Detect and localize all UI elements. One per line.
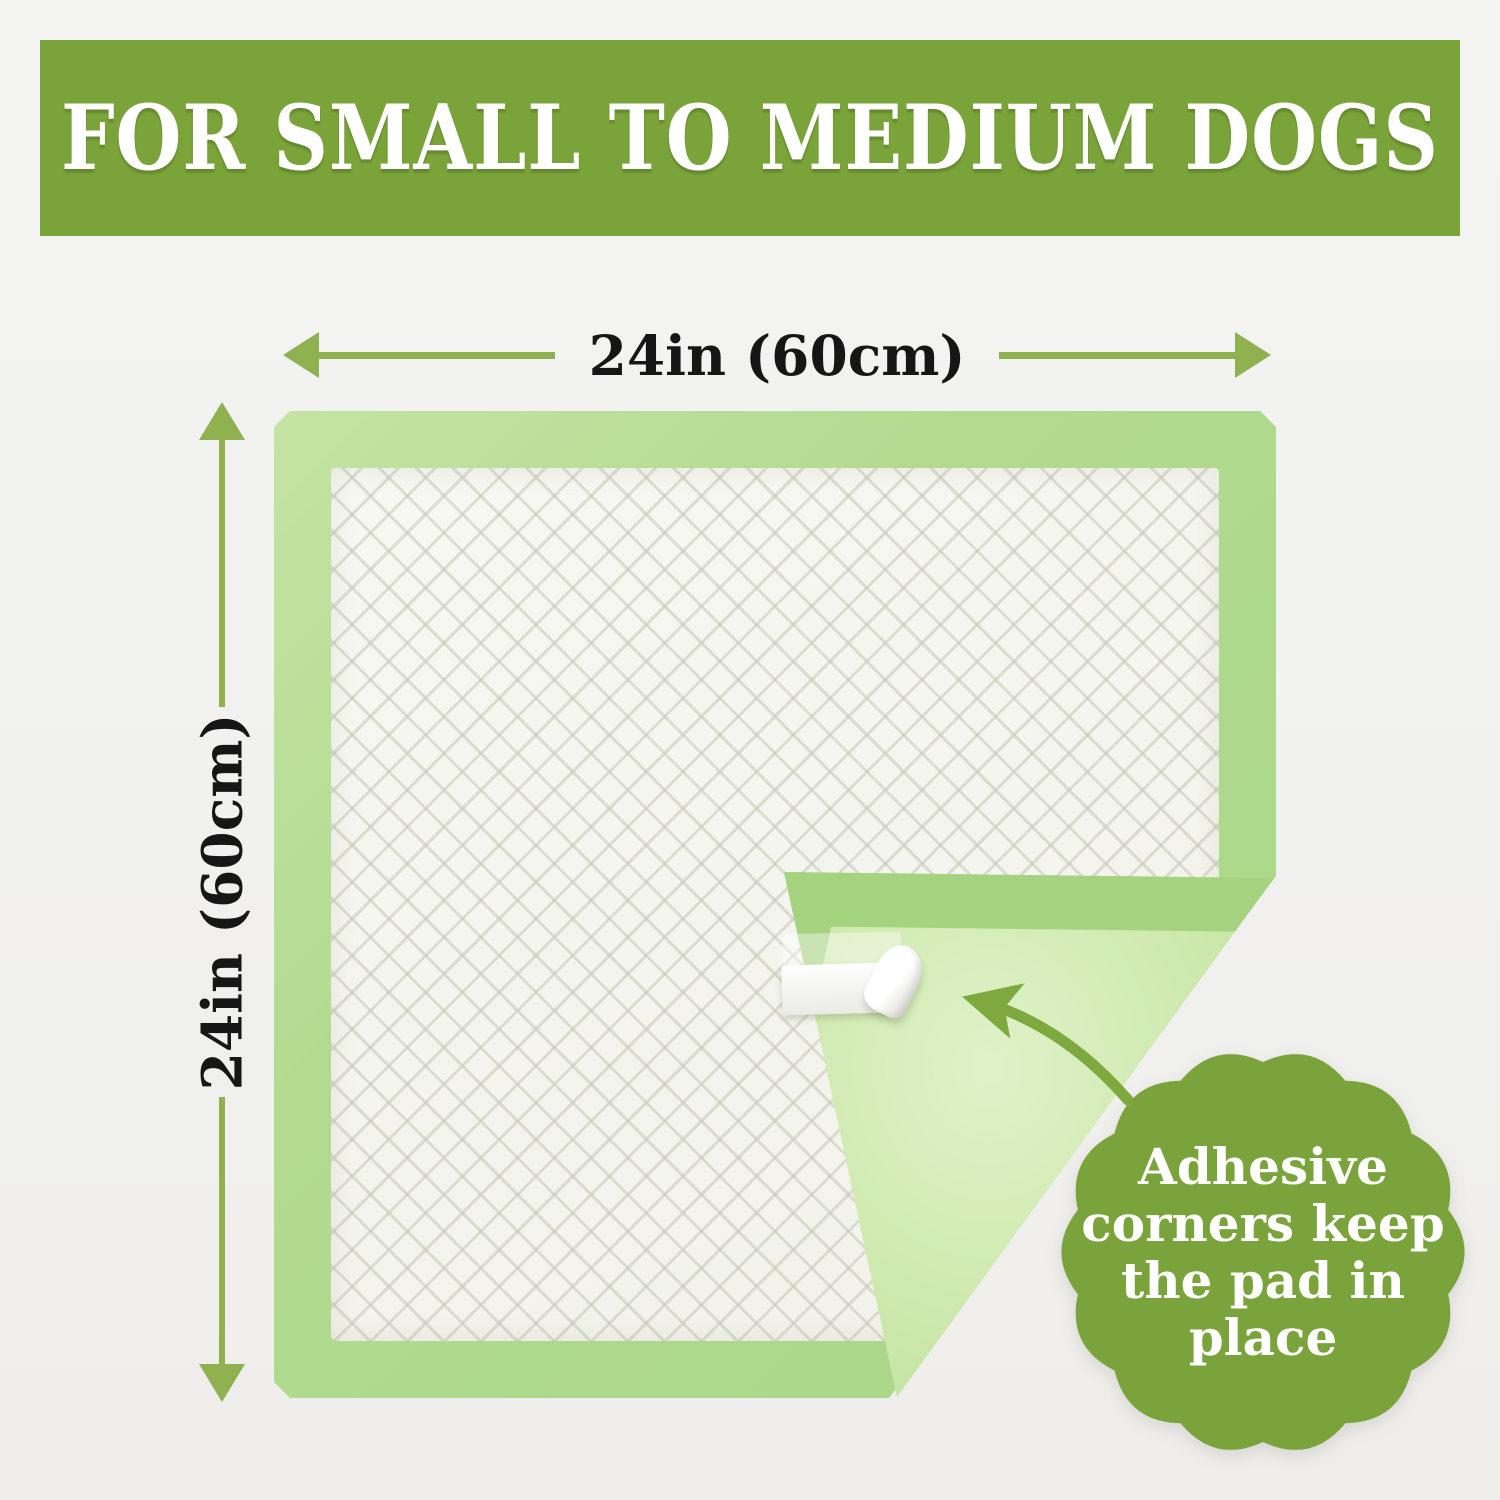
callout-line: the pad in bbox=[1121, 1252, 1405, 1309]
dimension-line bbox=[219, 1097, 225, 1364]
height-dimension: 24in (60cm) bbox=[194, 402, 250, 1402]
banner: FOR SMALL TO MEDIUM DOGS bbox=[40, 40, 1460, 236]
callout-line: corners keep bbox=[1081, 1195, 1444, 1252]
width-dimension: 24in (60cm) bbox=[283, 327, 1271, 383]
arrow-up-icon bbox=[199, 402, 245, 440]
callout-line: place bbox=[1189, 1309, 1338, 1366]
dimension-line bbox=[999, 352, 1235, 359]
width-label: 24in (60cm) bbox=[589, 323, 966, 388]
callout-line: Adhesive bbox=[1138, 1138, 1388, 1195]
height-label: 24in (60cm) bbox=[190, 714, 255, 1091]
callout-badge: Adhesive corners keep the pad in place bbox=[1063, 1057, 1463, 1447]
arrow-left-icon bbox=[283, 332, 319, 378]
dimension-line bbox=[219, 440, 225, 707]
arrow-right-icon bbox=[1235, 332, 1271, 378]
product-infographic: FOR SMALL TO MEDIUM DOGS 24in (60cm) 24i… bbox=[0, 0, 1500, 1500]
dimension-line bbox=[319, 352, 555, 359]
height-label-box: 24in (60cm) bbox=[194, 707, 250, 1097]
arrow-down-icon bbox=[199, 1364, 245, 1402]
banner-title: FOR SMALL TO MEDIUM DOGS bbox=[61, 85, 1439, 190]
